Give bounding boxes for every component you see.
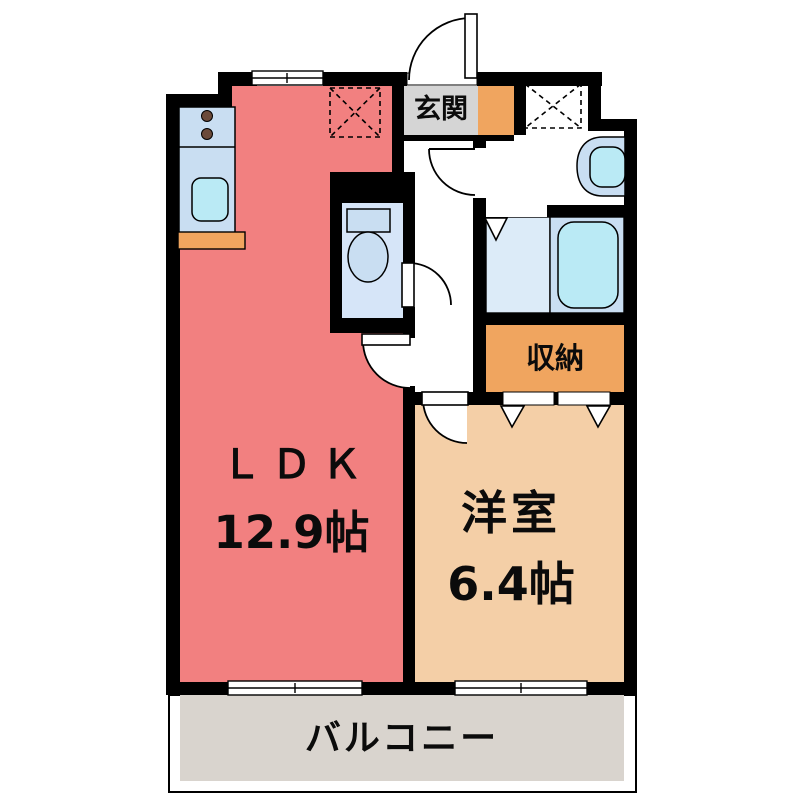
toilet-icon <box>347 209 390 282</box>
ldk-size-label: 12.9帖 <box>180 508 403 556</box>
western-room-size-label: 6.4帖 <box>415 560 607 608</box>
kitchen-window <box>252 71 323 85</box>
entrance-door-swing <box>407 14 477 85</box>
washer-place-icon <box>525 84 581 128</box>
plan-graphics <box>0 0 800 800</box>
bathroom <box>486 217 624 313</box>
counter-shelf-icon <box>178 232 245 249</box>
entrance-label: 玄関 <box>404 94 478 124</box>
washbasin-icon <box>577 137 625 196</box>
closet-folding-doors <box>501 392 610 427</box>
western-room-door-swing <box>422 392 468 443</box>
storage-label: 収納 <box>486 342 624 374</box>
washroom-door-swing <box>429 148 487 198</box>
ldk-label: ＬＤＫ <box>180 444 403 486</box>
stove-burners-icon <box>202 111 213 122</box>
kitchen-sink-icon <box>192 178 228 221</box>
ldk-door-swing <box>362 334 416 388</box>
western-room-label: 洋室 <box>415 489 607 537</box>
refrigerator-place-icon <box>330 88 380 137</box>
floor-plan: 玄関 収納 ＬＤＫ 12.9帖 洋室 6.4帖 バルコニー <box>0 0 800 800</box>
bathtub-icon <box>558 222 618 308</box>
ldk-balcony-window <box>228 681 362 695</box>
toilet-door-swing <box>402 263 451 307</box>
kitchen-unit <box>178 107 245 249</box>
balcony-label: バルコニー <box>180 719 624 759</box>
western-room-balcony-window <box>455 681 587 695</box>
